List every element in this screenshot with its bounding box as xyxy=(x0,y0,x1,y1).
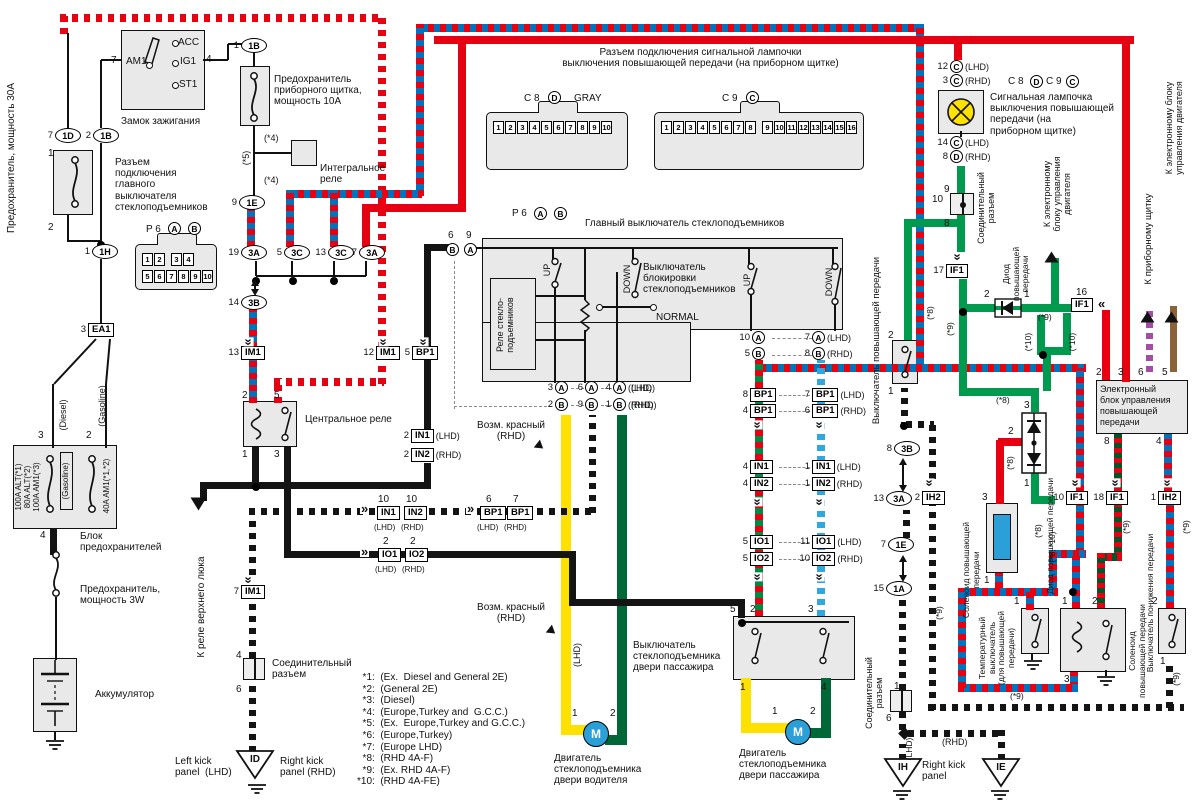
label: 1 xyxy=(1062,596,1068,607)
pin-circle: 5B xyxy=(752,347,765,360)
wire xyxy=(416,24,424,196)
driver-motor-label: Двигатель стеклоподъемника двери водител… xyxy=(554,753,641,787)
ignition-lock-label: Замок зажигания xyxy=(121,116,200,127)
label: (Diesel) xyxy=(58,386,68,444)
pin-circle: 10A xyxy=(752,331,765,344)
label: 3 xyxy=(38,430,44,441)
switch-contact-icon xyxy=(277,407,293,441)
chevron-icon: » xyxy=(1097,300,1106,310)
pin-circle: A xyxy=(534,207,547,220)
line xyxy=(739,622,849,624)
connector-box: 1IN1(LHD) xyxy=(812,460,861,474)
wire xyxy=(1031,394,1039,412)
fuse-icon xyxy=(44,455,56,513)
label: Соединительный разъем xyxy=(976,163,996,253)
chevron-icon: » xyxy=(953,252,963,261)
wire xyxy=(589,415,596,513)
line xyxy=(256,261,258,276)
label: (RHD) xyxy=(504,524,527,533)
connector-p6: 12345678910 xyxy=(135,244,217,290)
wire xyxy=(286,190,422,198)
connector-box: BP1 xyxy=(480,506,506,520)
connector-box: IN2 xyxy=(404,506,427,520)
junction-dot xyxy=(330,277,338,285)
ground-icon xyxy=(46,740,64,752)
connector-box: IF1 xyxy=(1071,298,1093,312)
chevron-icon: » xyxy=(815,572,825,581)
wire xyxy=(998,730,1005,760)
connector-oval: 71D xyxy=(55,128,81,143)
label: 6 xyxy=(448,230,454,241)
driver-window-motor: М xyxy=(583,721,609,747)
label: (LHD) xyxy=(477,524,498,533)
solenoid-core xyxy=(993,514,1011,560)
wire xyxy=(249,601,256,658)
pin-circle: C xyxy=(746,91,759,104)
connector-oval: 53C xyxy=(284,245,310,260)
passenger-switch-label: Выключатель стеклоподъемника двери пасса… xyxy=(633,640,720,674)
label: IG1 xyxy=(180,56,196,67)
label: 10 xyxy=(406,494,417,505)
label: (*9) xyxy=(1182,514,1192,540)
label: 1 xyxy=(772,706,778,717)
label: (*9) xyxy=(1172,666,1182,692)
line xyxy=(254,153,291,155)
chevron-icon: » xyxy=(360,547,369,557)
label: 1 xyxy=(888,386,894,397)
dashed-link xyxy=(454,261,456,409)
label: 5 xyxy=(730,604,736,615)
ground-icon xyxy=(248,784,266,796)
double-arrow-icon xyxy=(897,458,909,492)
wire xyxy=(996,440,1004,504)
wire xyxy=(738,599,745,618)
connector-box: 12IM1 xyxy=(376,346,400,360)
label: (Gasoline) xyxy=(60,452,73,510)
pin-circle: 14C(LHD) xyxy=(950,136,989,149)
label: (*5) xyxy=(241,146,251,170)
connector-oval: 143B xyxy=(241,295,267,310)
wire xyxy=(904,219,912,340)
connector-box: 6BP1(RHD) xyxy=(812,404,866,418)
connector-box: 4IN1 xyxy=(750,460,773,474)
label: 8 xyxy=(944,218,950,229)
wire xyxy=(1097,553,1105,608)
label: (*10) xyxy=(1024,326,1034,358)
label: 2 xyxy=(888,330,894,341)
line xyxy=(228,44,230,60)
arrow-icon xyxy=(1141,312,1155,323)
label: 1 xyxy=(740,682,746,693)
fuse-block-label: Блок предохранителей xyxy=(80,531,162,553)
label: 1 xyxy=(48,148,54,159)
connector-box: 2IH2 xyxy=(922,491,945,505)
connector-oval: 151A xyxy=(886,581,912,596)
line xyxy=(468,248,838,250)
label: (*10) xyxy=(1068,326,1078,358)
pin-circle: 6A xyxy=(585,381,598,394)
integral-relay-box xyxy=(291,140,317,166)
label: Соединительный разъем xyxy=(864,643,884,743)
to-engine-ecu-label: К электронному блоку управления двигател… xyxy=(1164,40,1184,216)
wire xyxy=(249,680,256,752)
label: (LHD) xyxy=(631,383,655,393)
wire xyxy=(760,364,1086,372)
pin-circle: A xyxy=(168,222,181,235)
label: 6 xyxy=(236,684,242,695)
label: (*8) xyxy=(1034,518,1044,544)
wire xyxy=(247,209,255,247)
passenger-window-motor: М xyxy=(785,719,811,745)
label: Соединительный разъем xyxy=(272,658,352,680)
label: (*9) xyxy=(946,316,956,342)
junction-dot xyxy=(900,422,908,430)
label: 2 xyxy=(1008,426,1014,437)
fuse-icon xyxy=(69,156,81,208)
label: (LHD) xyxy=(374,524,395,533)
label: 3 xyxy=(1064,674,1070,685)
to-instrument-panel-label: К приборному щитку xyxy=(1144,178,1155,300)
chevron-icon: » xyxy=(815,497,825,506)
label: 3 xyxy=(808,604,814,615)
label: UP xyxy=(542,258,552,282)
line xyxy=(585,330,587,383)
line xyxy=(292,261,294,276)
connector-box: 1IH2 xyxy=(1158,491,1181,505)
connector-box: 2IN2(RHD) xyxy=(411,448,461,462)
switch-contact-icon xyxy=(747,628,763,664)
label: 9 xyxy=(466,230,472,241)
chevron-icon: » xyxy=(753,497,763,506)
label: 7 xyxy=(513,494,519,505)
label: Центральное реле xyxy=(305,414,392,425)
battery-label: Аккумулятор xyxy=(95,689,154,700)
label: (LHD) xyxy=(905,733,915,765)
label: 1 xyxy=(242,449,248,460)
coil-icon xyxy=(249,409,263,439)
label: ST1 xyxy=(179,79,197,90)
wire xyxy=(957,166,965,194)
line xyxy=(101,259,103,323)
wire xyxy=(60,14,384,22)
contact-circle xyxy=(172,82,179,89)
wire xyxy=(249,360,257,403)
label: Left kick panel (LHD) xyxy=(175,756,232,778)
label: 1 xyxy=(894,681,900,692)
wire xyxy=(1051,258,1059,308)
label: 10 xyxy=(378,494,389,505)
arrow-icon xyxy=(1165,312,1179,323)
label: NORMAL xyxy=(656,312,699,323)
pin-circle: C xyxy=(1066,75,1079,88)
label: 4 xyxy=(821,682,827,693)
junction-dot xyxy=(1039,351,1047,359)
label: DOWN xyxy=(622,256,632,302)
label: 100A AM1(*3) xyxy=(33,448,42,526)
label: 3 xyxy=(1024,400,1030,411)
line xyxy=(54,339,96,384)
label: 2 xyxy=(383,536,389,547)
connector-oval: 193A xyxy=(241,245,267,260)
connector-box: 7BP1(LHD) xyxy=(812,388,864,402)
connector-oval: 133C xyxy=(328,245,354,260)
pin-circle: 9B xyxy=(585,398,598,411)
label: 1 xyxy=(1014,596,1020,607)
label: Right kick panel xyxy=(922,760,965,782)
label: (RHD) xyxy=(942,737,968,747)
line xyxy=(555,286,557,383)
label: GRAY xyxy=(574,93,602,104)
chevron-icon: » xyxy=(244,337,254,346)
label: (*4) xyxy=(264,175,279,185)
junction-dot xyxy=(252,483,260,491)
ground-icon xyxy=(1097,676,1115,688)
label: 2 xyxy=(48,222,54,233)
chevron-icon: » xyxy=(1071,478,1081,487)
connector-box: IO2 xyxy=(405,548,428,562)
label: 4 xyxy=(236,650,242,661)
label: (*9) xyxy=(1122,514,1132,540)
junction-box xyxy=(950,193,974,215)
label: 5 xyxy=(274,390,280,401)
label: 1 xyxy=(984,575,990,586)
wire xyxy=(249,515,256,575)
od-lamp-label: Сигнальная лампочка выключения повышающе… xyxy=(990,92,1114,137)
pin-circle: 12C(LHD) xyxy=(950,60,989,73)
resistor-icon xyxy=(580,300,590,332)
fuse-icon xyxy=(50,551,62,597)
switch-contact-icon xyxy=(815,628,831,664)
line xyxy=(68,215,70,242)
pin-circle: 3A xyxy=(555,381,568,394)
label: AM1 xyxy=(126,56,147,67)
line xyxy=(53,384,55,448)
sunroof-relay-label: К реле верхнего люка xyxy=(196,542,207,672)
label: 4 xyxy=(40,530,46,541)
pin-circle: 8D(RHD) xyxy=(950,150,991,163)
label: 2 xyxy=(1092,596,1098,607)
junction-dot xyxy=(738,619,746,627)
battery-icon xyxy=(35,660,75,730)
label: Реле стекло- подъемников xyxy=(495,282,515,368)
dash-fuse-label: Предохранитель приборного щитка, мощност… xyxy=(274,74,362,108)
connector-oval: 83B xyxy=(894,441,920,456)
wire xyxy=(424,244,431,348)
dual-diode-icon xyxy=(1021,412,1047,474)
connector-box: 4IN2 xyxy=(750,477,773,491)
ground-id: ID xyxy=(236,750,274,780)
pin-circle: D xyxy=(1030,75,1043,88)
connector-oval: 73A xyxy=(359,245,385,260)
label: 2 xyxy=(242,390,248,401)
wire xyxy=(378,14,386,384)
switch-contact-icon xyxy=(1098,620,1114,660)
wire xyxy=(899,598,906,690)
connector-oval: 11B xyxy=(241,38,267,53)
line xyxy=(585,249,587,300)
header-od-lamp-connector: Разъем подключения сигнальной лампочки в… xyxy=(528,47,873,69)
chevron-icon: » xyxy=(925,478,935,487)
wire xyxy=(908,730,1004,737)
connector-box: 11IO1(LHD) xyxy=(812,535,861,549)
connector-box: 7IM1 xyxy=(241,585,265,599)
line xyxy=(749,249,751,264)
label: (*9) xyxy=(1038,313,1052,323)
wire xyxy=(362,204,370,247)
label: (*8) xyxy=(926,300,936,326)
fusible-link-30a-label: Предохранитель, мощность 30А xyxy=(6,58,17,258)
label: Right kick panel (RHD) xyxy=(280,756,336,778)
junction-dot xyxy=(1069,588,1077,596)
junction-dot xyxy=(959,308,967,316)
p6-connector-label: Разъем подключения главного выключателя … xyxy=(115,157,208,213)
connector-box: 18IF1 xyxy=(1106,491,1128,505)
wire xyxy=(1076,505,1084,554)
line xyxy=(366,261,368,276)
connector-box: 10IO2(RHD) xyxy=(812,552,863,566)
label: 8 xyxy=(1104,436,1110,447)
wire xyxy=(1122,36,1130,382)
connector-box: IO1 xyxy=(378,548,401,562)
ground-icon xyxy=(1024,660,1042,672)
wire xyxy=(1166,505,1174,608)
label: Интегральное реле xyxy=(320,163,385,185)
line xyxy=(101,143,103,244)
wire xyxy=(284,551,576,558)
dashed-link xyxy=(454,406,552,408)
connector-box: 5IO1 xyxy=(750,535,773,549)
switch-contact-icon xyxy=(897,346,913,378)
chevron-icon: » xyxy=(753,572,763,581)
connector-oval: 91E xyxy=(239,195,265,210)
wire xyxy=(904,219,962,227)
label: DOWN xyxy=(824,258,834,306)
ground-icon xyxy=(991,790,1009,802)
connector-oval: 21B xyxy=(93,128,119,143)
fuse-3w-label: Предохранитель, мощность 3W xyxy=(80,584,160,606)
wire xyxy=(286,190,294,247)
ground-ie: IE xyxy=(982,758,1020,788)
connector-box: 4BP1 xyxy=(750,404,776,418)
line xyxy=(600,307,652,309)
od-switch-label: Выключатель повышающей передачи xyxy=(872,238,883,443)
wire xyxy=(569,599,745,606)
connector-c9: 12345678910111213141516 xyxy=(654,112,864,170)
connector-oval: 11H xyxy=(92,244,118,259)
lock-switch-label: Выключатель блокировки стеклоподъемников xyxy=(643,262,736,296)
label: (RHD) xyxy=(631,400,657,410)
line xyxy=(536,296,585,298)
contact-circle xyxy=(596,304,603,311)
label: (RHD) xyxy=(402,566,425,575)
label: 2 xyxy=(1096,367,1102,378)
label: 2 xyxy=(410,536,416,547)
label: 2 xyxy=(984,289,990,300)
wire xyxy=(434,36,1134,44)
contact-circle xyxy=(172,60,179,67)
lamp-icon xyxy=(946,97,976,127)
pin-circle: 3C(RHD) xyxy=(950,74,991,87)
line xyxy=(835,302,837,331)
line xyxy=(68,33,70,128)
wire xyxy=(200,482,431,489)
svg-text:IE: IE xyxy=(996,762,1006,773)
connector-box: 3EA1 xyxy=(88,323,114,337)
connector-box: 17IF1 xyxy=(946,264,968,278)
label: 1 xyxy=(1024,478,1030,489)
label: 2 xyxy=(750,604,756,615)
label: К электронному блоку управления двигател… xyxy=(1042,133,1072,255)
note-red-wire-1: Возм. красный (RHD) xyxy=(468,420,554,442)
wiring-diagram: 1234567891012345678910111213141516123456… xyxy=(0,0,1200,809)
label: (*8) xyxy=(1006,450,1016,476)
label: UP xyxy=(742,268,752,292)
master-switch-label: Главный выключатель стеклоподъемников xyxy=(585,218,784,229)
wire xyxy=(416,24,924,32)
label: 2 xyxy=(610,708,616,719)
wire xyxy=(903,510,910,538)
label: 16 xyxy=(1076,287,1087,298)
ground-icon xyxy=(893,790,911,802)
connector-box: 8BP1 xyxy=(750,388,776,402)
connector-box: 10IF1 xyxy=(1066,491,1088,505)
ground-ih: IH xyxy=(884,758,922,788)
label: (LHD) xyxy=(572,636,582,674)
label: (LHD) xyxy=(375,566,396,575)
pin-circle: D xyxy=(548,91,561,104)
svg-text:ID: ID xyxy=(250,754,260,765)
label: С 9 xyxy=(1046,76,1062,87)
label: 2 xyxy=(86,430,92,441)
label: (*8, *10) xyxy=(1048,518,1058,576)
label: 9 xyxy=(944,184,950,195)
label: (RHD) xyxy=(401,524,424,533)
line xyxy=(55,732,57,740)
line xyxy=(256,276,366,278)
junction-box xyxy=(890,690,912,712)
pin-circle: 8B(RHD) xyxy=(812,347,853,360)
chevron-icon: » xyxy=(815,420,825,429)
wire xyxy=(458,36,466,210)
fuse-icon xyxy=(248,72,260,122)
wire xyxy=(330,190,338,247)
junction-box xyxy=(243,658,265,680)
label: 4 xyxy=(206,54,212,65)
wire xyxy=(916,24,924,370)
label: 6 xyxy=(886,713,892,724)
label: 1 xyxy=(1024,289,1030,300)
coil-icon xyxy=(1070,622,1084,652)
chevron-icon: » xyxy=(379,337,389,346)
wire xyxy=(424,360,431,431)
pin-circle: 7A(LHD) xyxy=(812,331,851,344)
wire xyxy=(569,551,576,606)
wire xyxy=(1076,368,1084,491)
wire xyxy=(954,40,962,60)
label: 1 xyxy=(1160,656,1166,667)
label: 3 xyxy=(274,449,280,460)
label: (*9) xyxy=(935,600,945,626)
switch-contact-icon xyxy=(1164,614,1180,648)
wire xyxy=(1072,556,1080,608)
label: С 8 xyxy=(1008,76,1024,87)
ecu-label: Электронный блок управления повышающей п… xyxy=(1100,384,1171,428)
label: 3 xyxy=(982,492,988,503)
chevron-icon: » xyxy=(753,420,763,429)
label: C 9 xyxy=(722,93,738,104)
wire xyxy=(60,14,68,34)
wire xyxy=(959,311,967,394)
